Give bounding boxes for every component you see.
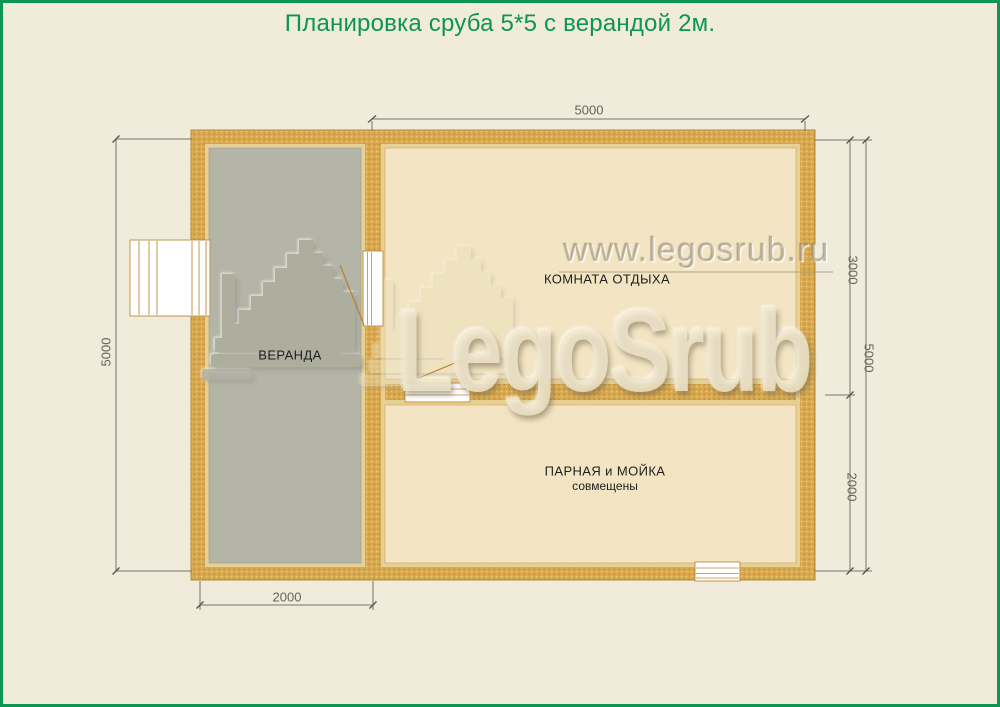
room-label-veranda: ВЕРАНДА [258, 348, 321, 363]
room-label-steam-room: ПАРНАЯ и МОЙКА [545, 464, 666, 479]
dimension-right-room-bottom: 2000 [845, 473, 860, 502]
dimension-right-total: 5000 [862, 344, 877, 373]
entrance-door-steps [130, 240, 210, 316]
watermark-site-url: www.legosrub.ru [559, 231, 833, 273]
dimension-veranda-width: 2000 [273, 590, 302, 605]
window [695, 562, 740, 581]
watermark-brand: LegoSrub [397, 293, 811, 409]
room-sublabel-steam-room: совмещены [572, 479, 638, 493]
floor-plan-page: Планировка сруба 5*5 с верандой 2м. [0, 0, 1000, 707]
dimension-top-width: 5000 [575, 103, 604, 118]
dimension-left-height: 5000 [99, 338, 114, 367]
room-label-rest-room: КОМНАТА ОТДЫХА [544, 272, 670, 287]
dimension-right-room-top: 3000 [846, 256, 861, 285]
